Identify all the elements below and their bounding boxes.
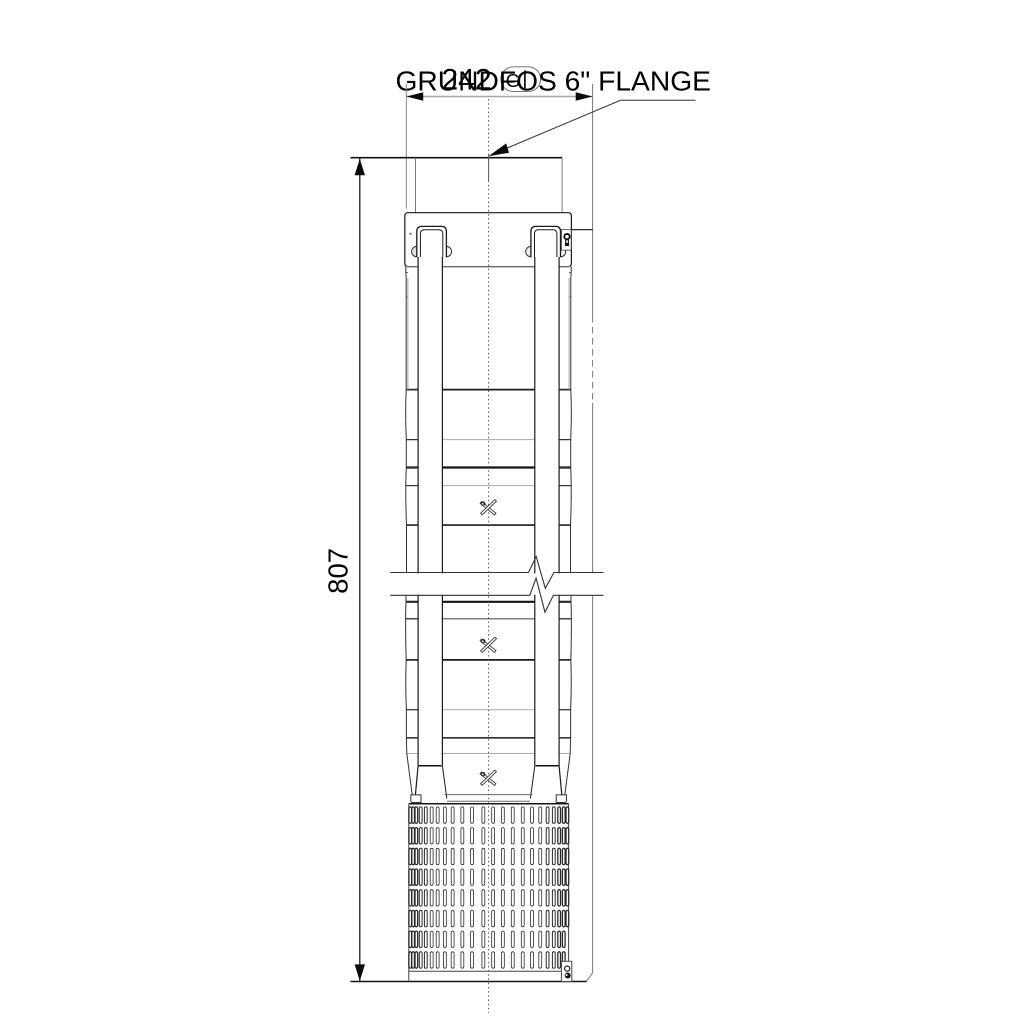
svg-text:807: 807 bbox=[323, 548, 354, 594]
svg-text:GRUNDFOS 6" FLANGE: GRUNDFOS 6" FLANGE bbox=[396, 65, 711, 97]
